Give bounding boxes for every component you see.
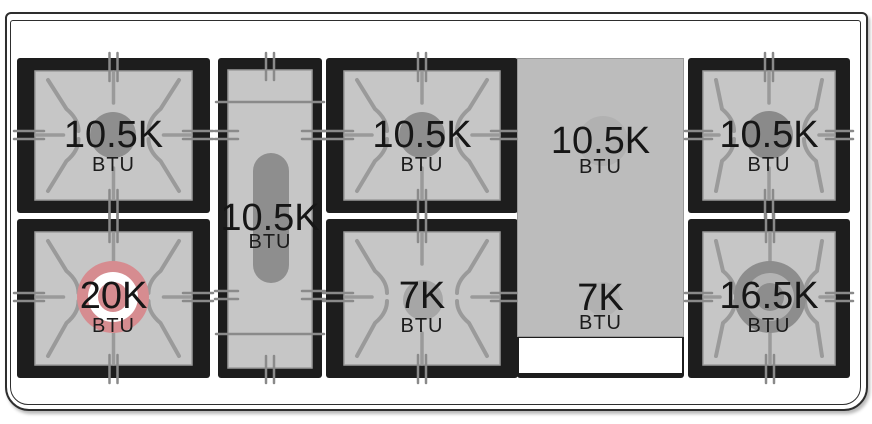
range-top-diagram: 10.5K BTU 20K BTU 10.5K BTU 10.5K BTU 7K… (0, 0, 872, 424)
burner-btu-unit: BTU (218, 231, 322, 254)
griddle-cutout (519, 338, 682, 373)
burner-btu-value: 10.5K (17, 114, 210, 156)
burner-btu-unit: BTU (17, 315, 210, 338)
burner-cell-bottom-right: 16.5K BTU (688, 219, 850, 378)
burner-cell-top-middle: 10.5K BTU (326, 58, 518, 213)
burner-btu-unit: BTU (688, 315, 850, 338)
burner-btu-unit: BTU (518, 156, 683, 179)
burner-btu-unit: BTU (326, 315, 518, 338)
griddle-plate[interactable]: 10.5K BTU 7K BTU (517, 58, 684, 337)
burner-cell-top-right: 10.5K BTU (688, 58, 850, 213)
burner-btu-unit: BTU (688, 154, 850, 177)
burner-btu-value: 7K (326, 275, 518, 317)
burner-btu-value: 16.5K (688, 275, 850, 317)
burner-btu-value: 10.5K (326, 114, 518, 156)
burner-btu-unit: BTU (518, 312, 683, 335)
burner-cell-center-oval: 10.5K BTU (218, 58, 322, 378)
burner-cell-top-left: 10.5K BTU (17, 58, 210, 213)
burner-btu-value: 10.5K (688, 114, 850, 156)
burner-cell-bottom-left: 20K BTU (17, 219, 210, 378)
burner-btu-unit: BTU (17, 154, 210, 177)
burner-btu-value: 20K (17, 275, 210, 317)
burner-cell-bottom-middle: 7K BTU (326, 219, 518, 378)
burner-btu-unit: BTU (326, 154, 518, 177)
